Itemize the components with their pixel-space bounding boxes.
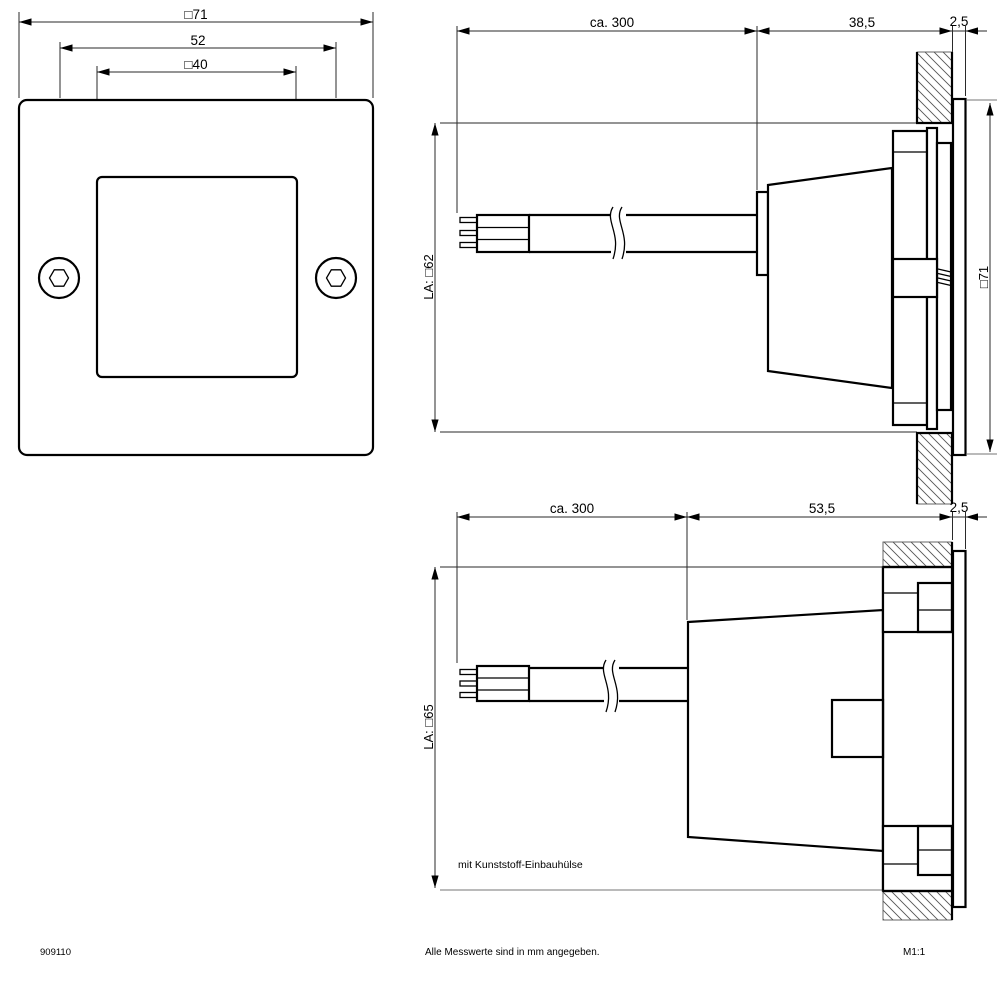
bezel-plate-top: [953, 99, 966, 455]
dim-label-height-top: □71: [976, 266, 991, 288]
sleeve-note: mit Kunststoff-Einbauhülse: [458, 859, 583, 871]
units-note: Alle Messwerte sind in mm angegeben.: [425, 947, 600, 958]
wall-hatch-lower: [917, 433, 952, 504]
height-dimension-top: □71: [967, 100, 997, 454]
dim-label-cutout-top: LA: □62: [421, 254, 436, 299]
dim-label-cable-length-bottom: ca. 300: [550, 501, 594, 516]
technical-drawing-page: □71 52 □40 ca. 300: [0, 0, 1000, 1000]
cable-break-symbol-top: [610, 207, 615, 259]
housing-cone-top: [768, 168, 892, 388]
strain-relief-top: [757, 192, 768, 275]
wall-hatch-upper: [917, 52, 952, 123]
wire-connector-bottom: [477, 666, 529, 701]
footer: 909110 Alle Messwerte sind in mm angegeb…: [40, 947, 926, 958]
screw-boss: [893, 259, 937, 297]
cable-assembly-top: [460, 207, 757, 259]
wire-connector-top: [477, 215, 529, 252]
luminaire-body-bottom: [688, 567, 952, 891]
light-window: [97, 177, 297, 377]
dim-label-outer-width: □71: [184, 7, 207, 22]
side-view-bottom: ca. 300 53,5 2,5 LA: □65: [421, 500, 987, 920]
luminaire-body-top: [757, 128, 951, 429]
luminaire-technical-drawing: □71 52 □40 ca. 300: [0, 0, 1000, 1000]
article-number: 909110: [40, 947, 71, 958]
dim-label-recess-depth-top: 38,5: [849, 15, 875, 30]
dim-label-recess-depth-bottom: 53,5: [809, 501, 835, 516]
front-view: □71 52 □40: [19, 7, 373, 455]
dim-label-cutout-bottom: LA: □65: [421, 704, 436, 749]
terminal-box: [832, 700, 883, 757]
wall-hatch-upper-b: [883, 542, 952, 567]
dim-label-cable-length-top: ca. 300: [590, 15, 634, 30]
side-view-top: ca. 300 38,5 2,5 LA: □62: [421, 14, 997, 504]
cable-assembly-bottom: [460, 660, 688, 712]
scale-label: M1:1: [903, 947, 926, 958]
cable-break-symbol-bottom: [603, 660, 608, 712]
bezel-plate-bottom: [953, 551, 966, 907]
dim-label-window-width: □40: [184, 57, 207, 72]
dim-label-screw-spacing: 52: [190, 33, 205, 48]
wall-hatch-lower-b: [883, 891, 952, 920]
